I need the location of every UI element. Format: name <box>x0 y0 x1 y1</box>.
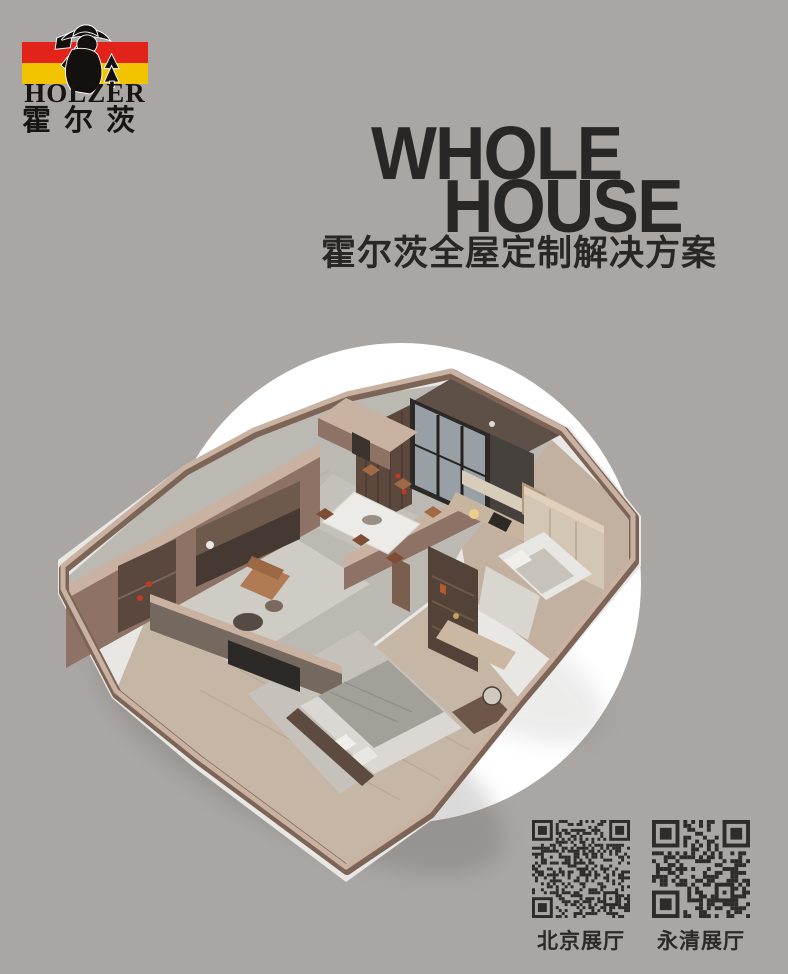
qr-label-beijing: 北京展厅 <box>537 925 625 955</box>
qr-code-yongqing <box>652 820 750 918</box>
qr-section: 北京展厅 永清展厅 <box>532 820 750 955</box>
qr-item-yongqing: 永清展厅 <box>652 820 750 955</box>
qr-label-yongqing: 永清展厅 <box>657 925 745 955</box>
qr-item-beijing: 北京展厅 <box>532 820 630 955</box>
poster-canvas: HOLZER 霍尔茨 WHOLE HOUSE 霍尔茨全屋定制解决方案 <box>0 0 788 974</box>
qr-code-beijing <box>532 820 630 918</box>
